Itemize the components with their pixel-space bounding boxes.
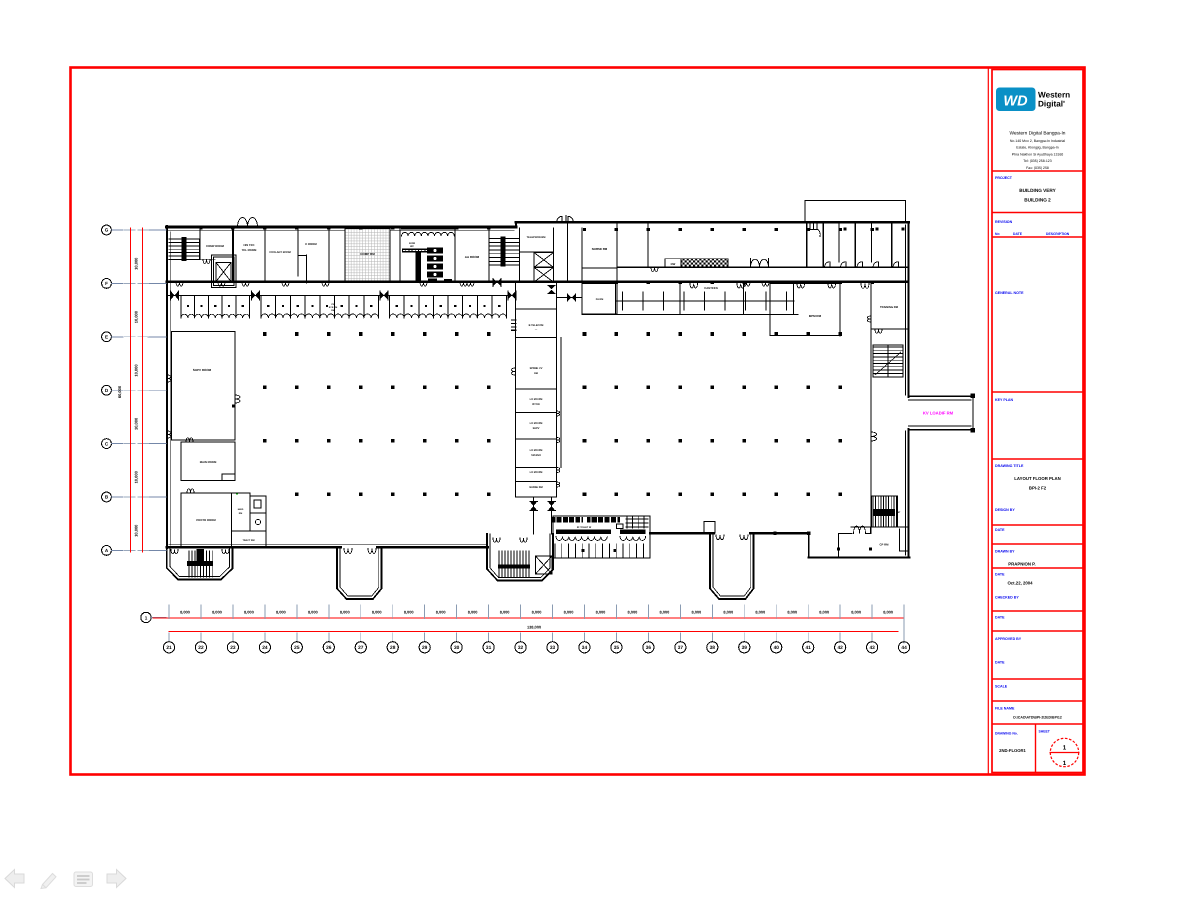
- svg-text:36: 36: [646, 645, 652, 651]
- svg-text:22: 22: [198, 645, 204, 651]
- svg-text:LO MO RM: LO MO RM: [530, 471, 543, 474]
- svg-text:HIS TEC: HIS TEC: [243, 243, 254, 247]
- svg-text:REVISION: REVISION: [995, 220, 1013, 224]
- svg-text:DESCRIPTION: DESCRIPTION: [1046, 232, 1070, 236]
- svg-text:GENERAL NOTE: GENERAL NOTE: [995, 291, 1024, 295]
- svg-text:43: 43: [869, 645, 875, 651]
- svg-text:DATE: DATE: [995, 573, 1005, 577]
- svg-text:25: 25: [294, 645, 300, 651]
- svg-text:PROJECT: PROJECT: [995, 176, 1013, 180]
- svg-text:8,000: 8,000: [851, 610, 861, 615]
- svg-text:SYS RM: SYS RM: [329, 306, 338, 309]
- svg-text:Western: Western: [1038, 91, 1070, 100]
- svg-text:KEY PLAN: KEY PLAN: [995, 398, 1014, 402]
- svg-text:8,000: 8,000: [436, 610, 446, 615]
- svg-text:Tel: (035) 258-123: Tel: (035) 258-123: [1023, 159, 1051, 163]
- svg-text:B TELECOM: B TELECOM: [529, 324, 544, 327]
- svg-text:8,000: 8,000: [308, 610, 318, 615]
- svg-text:SHEET: SHEET: [1039, 730, 1051, 734]
- svg-text:RM: RM: [534, 372, 538, 375]
- svg-text:26: 26: [326, 645, 332, 651]
- svg-text:BPI-2 F2: BPI-2 F2: [1029, 486, 1047, 491]
- svg-text:PRAPNION P.: PRAPNION P.: [1008, 562, 1035, 567]
- svg-text:8,000: 8,000: [404, 610, 414, 615]
- svg-text:COMP RM: COMP RM: [360, 252, 375, 256]
- svg-text:8,000: 8,000: [787, 610, 797, 615]
- svg-text:39: 39: [742, 645, 748, 651]
- svg-text:DRAWN BY: DRAWN BY: [995, 550, 1015, 554]
- svg-text:37: 37: [678, 645, 684, 651]
- svg-text:8,000: 8,000: [723, 610, 733, 615]
- svg-text:10,000: 10,000: [134, 364, 139, 377]
- svg-text:CANTEEN: CANTEEN: [704, 286, 718, 290]
- svg-text:8,000: 8,000: [468, 610, 478, 615]
- svg-text:Phra Nakhon Si Ayutthaya 13160: Phra Nakhon Si Ayutthaya 13160: [1012, 152, 1064, 156]
- svg-text:8,000: 8,000: [883, 610, 893, 615]
- svg-text:8,000: 8,000: [564, 610, 574, 615]
- svg-text:10,000: 10,000: [134, 310, 139, 323]
- svg-text:NURSE RM: NURSE RM: [529, 486, 542, 489]
- svg-text:44: 44: [901, 645, 907, 651]
- svg-text:138,000: 138,000: [527, 625, 541, 630]
- svg-text:BUILDING 2: BUILDING 2: [1024, 198, 1051, 203]
- svg-text:42: 42: [837, 645, 843, 651]
- svg-text:Estate, Klongjig, Bangpa-In: Estate, Klongjig, Bangpa-In: [1016, 146, 1058, 150]
- svg-text:KV LOADIF RM: KV LOADIF RM: [923, 411, 954, 416]
- svg-text:WD: WD: [1003, 94, 1028, 110]
- svg-text:27: 27: [358, 645, 364, 651]
- svg-text:E: E: [105, 335, 108, 340]
- svg-text:NURSE RM: NURSE RM: [592, 247, 608, 251]
- svg-text:DATE: DATE: [995, 661, 1005, 665]
- svg-text:LO MO RM: LO MO RM: [530, 398, 543, 401]
- svg-text:8,000: 8,000: [244, 610, 254, 615]
- svg-text:PA: PA: [332, 303, 335, 306]
- svg-text:Western Digital Bangpa-In: Western Digital Bangpa-In: [1010, 131, 1066, 137]
- svg-text:CHECKED BY: CHECKED BY: [995, 596, 1019, 600]
- svg-text:34: 34: [582, 645, 588, 651]
- svg-text:10,000: 10,000: [134, 470, 139, 483]
- svg-text:8,000: 8,000: [212, 610, 222, 615]
- svg-text:8,000: 8,000: [500, 610, 510, 615]
- svg-text:1: 1: [1063, 760, 1067, 767]
- svg-text:TATANO: TATANO: [531, 454, 541, 457]
- svg-text:COMP ROOM: COMP ROOM: [206, 244, 224, 248]
- svg-text:2F TOILET W: 2F TOILET W: [577, 526, 592, 529]
- svg-text:E ROOM: E ROOM: [305, 242, 317, 246]
- svg-text:RM: RM: [331, 309, 335, 312]
- svg-text:D:\CAD\ATD\BPI-2\2ED\BPI12: D:\CAD\ATD\BPI-2\2ED\BPI12: [1013, 716, 1062, 720]
- svg-text:8,000: 8,000: [819, 610, 829, 615]
- svg-text:LO MO RM: LO MO RM: [530, 422, 543, 425]
- svg-text:B RM: B RM: [409, 242, 415, 245]
- svg-text:8,000: 8,000: [755, 610, 765, 615]
- svg-text:28: 28: [390, 645, 396, 651]
- svg-text:31: 31: [486, 645, 492, 651]
- svg-text:8,000: 8,000: [628, 610, 638, 615]
- svg-text:No.140 Moo 2, Bangpa-In Indust: No.140 Moo 2, Bangpa-In Industrial: [1010, 139, 1065, 143]
- svg-text:Oct.22, 2004: Oct.22, 2004: [1007, 581, 1033, 586]
- svg-text:23: 23: [230, 645, 236, 651]
- svg-text:30: 30: [454, 645, 460, 651]
- svg-text:38: 38: [710, 645, 716, 651]
- svg-text:BUILDING VERY: BUILDING VERY: [1019, 188, 1056, 193]
- svg-text:SUPV: SUPV: [533, 427, 540, 430]
- svg-text:10,000: 10,000: [134, 524, 139, 537]
- svg-text:10,000: 10,000: [134, 257, 139, 270]
- svg-text:35: 35: [614, 645, 620, 651]
- svg-text:WC: WC: [410, 245, 414, 248]
- svg-text:1: 1: [145, 615, 148, 620]
- svg-text:BPM RM: BPM RM: [809, 314, 822, 318]
- svg-text:29: 29: [422, 645, 428, 651]
- svg-text:2ND-FLOOR1: 2ND-FLOOR1: [999, 748, 1026, 753]
- svg-text:MAIN ROOM: MAIN ROOM: [200, 460, 217, 464]
- svg-text:21: 21: [166, 645, 172, 651]
- svg-text:DRAWING No.: DRAWING No.: [995, 732, 1018, 736]
- svg-text:DATE: DATE: [995, 528, 1005, 532]
- svg-text:8,000: 8,000: [276, 610, 286, 615]
- svg-text:AA ROOM: AA ROOM: [465, 255, 480, 259]
- svg-text:24: 24: [262, 645, 268, 651]
- svg-text:8,000: 8,000: [340, 610, 350, 615]
- svg-text:Fax: (035) 258: Fax: (035) 258: [1026, 166, 1049, 170]
- svg-text:MAID: MAID: [238, 508, 244, 511]
- svg-text:8,000: 8,000: [691, 610, 701, 615]
- svg-text:Digital': Digital': [1038, 100, 1065, 109]
- svg-text:CP RM: CP RM: [880, 543, 890, 547]
- svg-text:F: F: [105, 281, 108, 286]
- svg-text:FILE NAME: FILE NAME: [995, 707, 1015, 711]
- svg-text:8,000: 8,000: [596, 610, 606, 615]
- svg-text:G: G: [105, 228, 109, 233]
- svg-text:SPRNK VV: SPRNK VV: [530, 367, 543, 370]
- svg-text:DATE: DATE: [1013, 232, 1023, 236]
- svg-text:TEL ROOM: TEL ROOM: [242, 248, 257, 252]
- svg-text:PA RM: PA RM: [596, 298, 603, 301]
- svg-text:1: 1: [1063, 745, 1067, 752]
- svg-text:40: 40: [774, 645, 780, 651]
- svg-text:DESIGN BY: DESIGN BY: [995, 508, 1015, 512]
- svg-text:SCALE: SCALE: [995, 685, 1008, 689]
- svg-text:TELEPHON RM: TELEPHON RM: [527, 236, 546, 239]
- svg-text:8,000: 8,000: [660, 610, 670, 615]
- svg-text:LAYOUT FLOOR PLAN: LAYOUT FLOOR PLAN: [1014, 476, 1060, 481]
- svg-text:8,000: 8,000: [180, 610, 190, 615]
- svg-text:32: 32: [518, 645, 524, 651]
- svg-text:No: No: [995, 232, 1000, 236]
- svg-text:10,000: 10,000: [134, 417, 139, 430]
- svg-text:RYON: RYON: [532, 403, 539, 406]
- svg-text:41: 41: [806, 645, 812, 651]
- svg-text:APPROVED BY: APPROVED BY: [995, 637, 1022, 641]
- svg-text:TRAINING RM: TRAINING RM: [880, 306, 899, 309]
- svg-text:8,000: 8,000: [532, 610, 542, 615]
- svg-text:RM: RM: [239, 512, 243, 515]
- svg-text:33: 33: [550, 645, 556, 651]
- svg-text:8,000: 8,000: [372, 610, 382, 615]
- svg-text:PHOTO ROOM: PHOTO ROOM: [196, 518, 216, 522]
- svg-text:DW: DW: [671, 262, 676, 266]
- svg-text:DRAWING TITLE: DRAWING TITLE: [995, 464, 1024, 468]
- svg-text:SUPV ROOM: SUPV ROOM: [193, 368, 212, 372]
- svg-text:60,000: 60,000: [117, 385, 122, 398]
- svg-text:LO MO RM: LO MO RM: [530, 449, 543, 452]
- svg-text:DATE: DATE: [995, 616, 1005, 620]
- svg-text:COOLANT ROOM: COOLANT ROOM: [269, 251, 291, 254]
- svg-text:TRACT RM: TRACT RM: [243, 539, 255, 542]
